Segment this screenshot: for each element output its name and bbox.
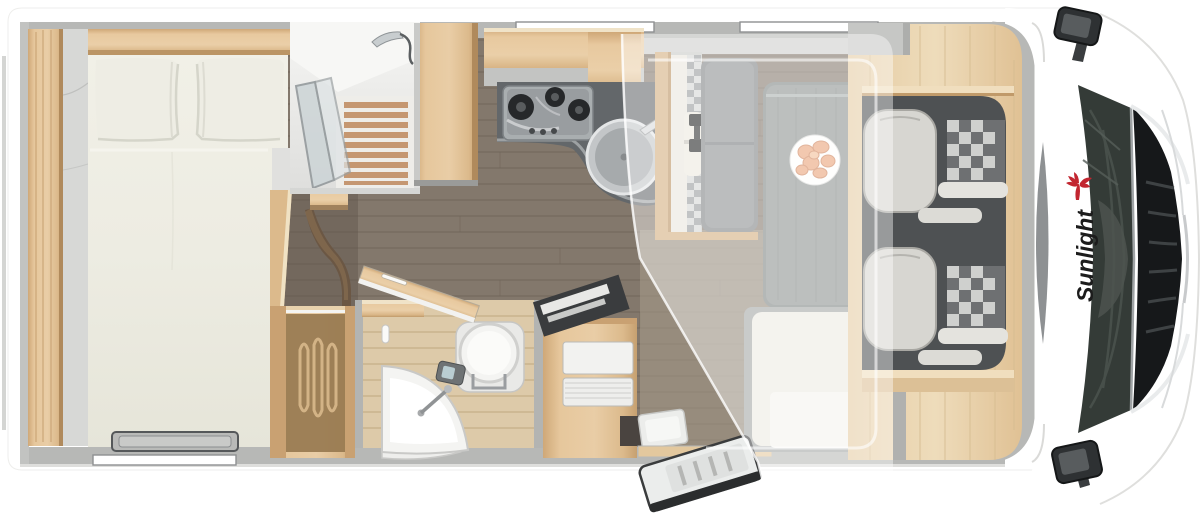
svg-text:Sunlight: Sunlight <box>1072 209 1098 302</box>
